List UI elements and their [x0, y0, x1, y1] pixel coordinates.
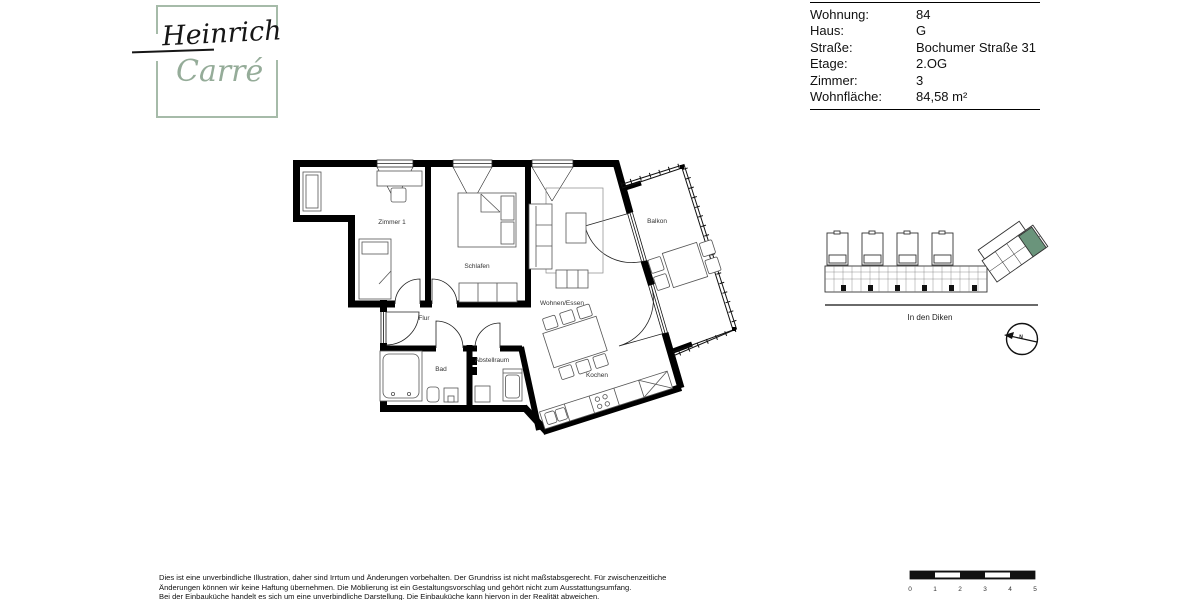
site-tower	[932, 231, 953, 265]
floor-plan-drawing: Zimmer 1 Schlafen Flur Bad Abstellraum W…	[0, 0, 1200, 600]
sideboard	[459, 283, 517, 302]
room-label-balkon: Balkon	[647, 218, 667, 225]
floor-plan: Zimmer 1 Schlafen Flur Bad Abstellraum W…	[293, 160, 737, 432]
wash-basin	[427, 387, 439, 402]
balcony-door-frames	[381, 212, 667, 343]
dining-table-group	[538, 303, 611, 381]
balcony-table-group	[647, 238, 722, 293]
street-label: In den Diken	[908, 313, 953, 322]
coffee-table	[566, 213, 586, 243]
toilet	[444, 388, 458, 402]
site-tower	[897, 231, 918, 265]
scale-tick-label: 2	[958, 586, 962, 593]
scale-bar: 0 1 2 3 4 5	[908, 571, 1037, 593]
wardrobe	[303, 172, 321, 211]
bad-door-swing	[436, 321, 463, 348]
scale-tick-label: 0	[908, 586, 912, 593]
schlafen-door-swing	[432, 279, 457, 304]
single-bed	[359, 239, 391, 299]
north-arrow-icon: N	[1004, 324, 1038, 355]
room-label-kochen: Kochen	[586, 372, 608, 379]
entrance-door-swing	[386, 312, 419, 345]
storage-shelf	[475, 386, 490, 402]
balcony-door2-swing	[619, 285, 665, 346]
bathtub	[380, 351, 422, 401]
room-label-schlafen: Schlafen	[464, 263, 490, 270]
room-label-abstellraum: Abstellraum	[475, 357, 509, 364]
room-label-flur: Flur	[418, 315, 430, 322]
floor-plan-sheet: Heinrich Carré Wohnung: 84 Haus: G Straß…	[0, 0, 1200, 600]
scale-tick-label: 1	[933, 586, 937, 593]
furniture	[303, 171, 722, 429]
scale-tick-label: 4	[1008, 586, 1012, 593]
zimmer1-door-swing	[395, 279, 420, 304]
site-plan: In den Diken N	[825, 216, 1048, 354]
room-label-wohnen-essen: Wohnen/Essen	[540, 300, 584, 307]
scale-labels: 0 1 2 3 4 5	[908, 586, 1037, 593]
site-tower	[862, 231, 883, 265]
disclaimer-line: Bei der Einbauküche handelt es sich um e…	[159, 592, 829, 600]
disclaimer: Dies ist eine unverbindliche Illustratio…	[159, 573, 829, 600]
site-tower	[827, 231, 848, 265]
room-label-bad: Bad	[435, 366, 447, 373]
double-bed	[458, 193, 516, 247]
disclaimer-line: Dies ist eine unverbindliche Illustratio…	[159, 573, 829, 583]
sofa	[529, 204, 552, 269]
scale-tick-label: 3	[983, 586, 987, 593]
desk-and-chair	[377, 171, 422, 202]
disclaimer-line: Änderungen können wir keine Haftung über…	[159, 583, 829, 593]
abstellraum-door-swing	[475, 323, 500, 348]
north-label: N	[1019, 335, 1023, 341]
scale-tick-label: 5	[1033, 586, 1037, 593]
room-label-zimmer1: Zimmer 1	[378, 219, 406, 226]
washing-machine	[503, 369, 522, 401]
tv-board	[556, 270, 588, 288]
